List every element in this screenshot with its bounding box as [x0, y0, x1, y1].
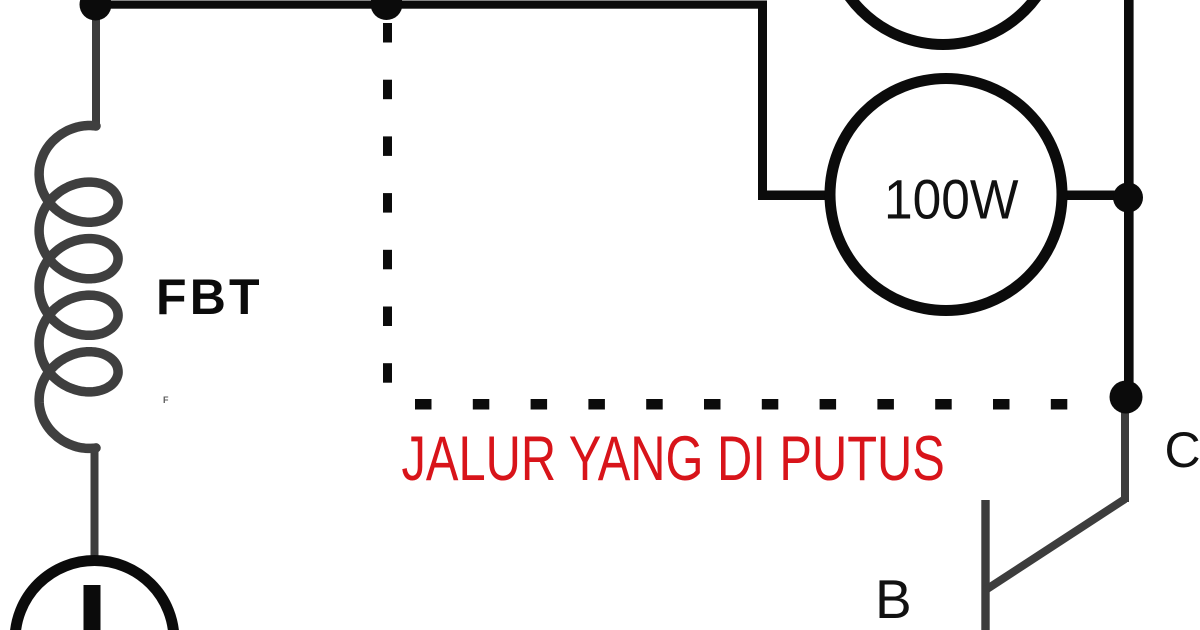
svg-text:JALUR YANG DI PUTUS: JALUR YANG DI PUTUS [402, 423, 945, 493]
svg-text:C: C [1165, 422, 1200, 478]
svg-text:F: F [163, 395, 169, 405]
svg-text:B: B [875, 568, 912, 630]
svg-text:100W: 100W [884, 170, 1019, 231]
svg-text:FBT: FBT [156, 269, 263, 325]
